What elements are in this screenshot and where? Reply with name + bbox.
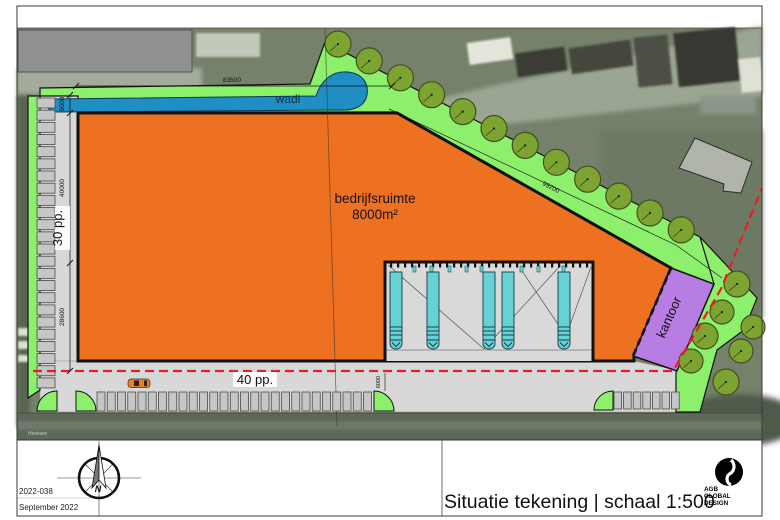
- dock-court: [385, 262, 593, 361]
- street-label: Hoekwei: [28, 431, 47, 437]
- dim-west-middle: 40000: [59, 179, 66, 197]
- dock-truck: [502, 272, 514, 349]
- truck-cab: [483, 340, 495, 349]
- tree: [450, 99, 476, 125]
- parking-stall: [302, 392, 310, 411]
- parking-stall: [118, 392, 126, 411]
- dock-door-tick: [523, 263, 525, 268]
- tree: [713, 369, 739, 395]
- logo-line1: AGB: [704, 486, 718, 493]
- truck-trailer: [502, 272, 514, 327]
- parking-stall: [37, 268, 55, 278]
- dock-door-tick: [544, 263, 546, 268]
- parking-stall: [37, 159, 55, 169]
- tree: [481, 116, 507, 142]
- dock-door-tick: [439, 263, 441, 268]
- dock-bumper: [413, 266, 416, 272]
- tree: [325, 31, 351, 57]
- parking-stall: [37, 98, 55, 108]
- parking-stall: [37, 305, 55, 315]
- parking-stall: [200, 392, 208, 411]
- parking-stall: [169, 392, 177, 411]
- dock-door-tick: [530, 263, 532, 268]
- tree: [741, 315, 765, 339]
- dock-bumper: [520, 266, 523, 272]
- parking-stall: [179, 392, 187, 411]
- tree: [637, 200, 663, 226]
- parking-stall: [37, 256, 55, 266]
- parking-stall: [37, 122, 55, 132]
- parking-stall: [37, 354, 55, 364]
- site-plan-svg: 83500 5000 40000 28600 99200 6000 wadi b…: [0, 0, 780, 520]
- tree: [356, 48, 382, 74]
- truck-cab: [390, 340, 402, 349]
- dock-door-tick: [516, 263, 518, 268]
- dock-bumper: [448, 266, 451, 272]
- parking-stall: [241, 392, 249, 411]
- parking-stall: [251, 392, 259, 411]
- dock-door-tick: [460, 263, 462, 268]
- parking-stall: [282, 392, 290, 411]
- dock-door-tick: [453, 263, 455, 268]
- parking-stall: [37, 281, 55, 291]
- logo-line2: GLOBAL: [704, 493, 731, 500]
- parking-stall: [37, 341, 55, 351]
- parking-stall: [37, 317, 55, 327]
- parking-stall: [37, 195, 55, 205]
- parking-stall: [148, 392, 156, 411]
- dock-door-tick: [474, 263, 476, 268]
- parking-left-label: 30 pp.: [50, 210, 65, 246]
- parking-stall: [643, 392, 651, 409]
- situation-drawing-page: 83500 5000 40000 28600 99200 6000 wadi b…: [0, 0, 780, 520]
- tree: [668, 217, 694, 243]
- parking-stall: [210, 392, 218, 411]
- dock-bumper: [562, 266, 565, 272]
- parking-stall: [189, 392, 197, 411]
- tree: [692, 323, 718, 349]
- truck-cab: [427, 340, 439, 349]
- parking-stall: [97, 392, 105, 411]
- dock-door-tick: [565, 263, 567, 268]
- truck-trailer: [390, 272, 402, 327]
- dock-door-tick: [404, 263, 406, 268]
- existing-building-northwest: [18, 30, 192, 72]
- parking-stall: [614, 392, 622, 409]
- truck-cab: [502, 340, 514, 349]
- wadi-label: wadi: [275, 92, 301, 106]
- parking-stall: [220, 392, 228, 411]
- parking-stall: [37, 329, 55, 339]
- dock-door-tick: [495, 263, 497, 268]
- parking-stall: [128, 392, 136, 411]
- parking-stall: [652, 392, 660, 409]
- dock-door-tick: [551, 263, 553, 268]
- parking-stall: [323, 392, 331, 411]
- parking-stall: [271, 392, 279, 411]
- tree: [543, 149, 569, 175]
- car-icon: [128, 379, 150, 388]
- logo-line3: DESIGN: [704, 500, 729, 507]
- truck-trailer: [483, 272, 495, 327]
- drawing-title: Situatie tekening | schaal 1:500: [444, 491, 715, 513]
- tree: [606, 183, 632, 209]
- parking-stall: [633, 392, 641, 409]
- dock-door-tick: [586, 263, 588, 268]
- tree: [729, 339, 753, 363]
- dock-door-tick: [425, 263, 427, 268]
- dim-west-lower: 28600: [59, 308, 66, 326]
- truck-cab: [558, 340, 570, 349]
- dock-door-tick: [558, 263, 560, 268]
- parking-stall: [261, 392, 269, 411]
- parking-stall: [138, 392, 146, 411]
- parking-stall: [37, 183, 55, 193]
- dock-truck: [390, 272, 402, 349]
- parking-stall: [37, 171, 55, 181]
- parking-stall: [37, 147, 55, 157]
- dock-door-tick: [418, 263, 420, 268]
- dock-door-tick: [509, 263, 511, 268]
- dim-north: 83500: [223, 77, 241, 84]
- parking-stall: [292, 392, 300, 411]
- parking-stall: [343, 392, 351, 411]
- parking-stall: [672, 392, 680, 409]
- parking-stall: [107, 392, 115, 411]
- dock-door-tick: [579, 263, 581, 268]
- truck-trailer: [558, 272, 570, 327]
- title-block: 2022-038 September 2022 Situatie tekenin…: [17, 440, 762, 516]
- dock-bumper: [480, 266, 483, 272]
- parking-stall: [37, 135, 55, 145]
- parking-stall: [662, 392, 670, 409]
- parking-stall: [364, 392, 372, 411]
- tree: [512, 132, 538, 158]
- parking-bottom-label: 40 pp.: [237, 372, 273, 387]
- dock-bumper: [465, 266, 468, 272]
- truck-trailer: [427, 272, 439, 327]
- parking-stall: [159, 392, 167, 411]
- dock-door-tick: [397, 263, 399, 268]
- dim-dock: 6000: [376, 376, 382, 388]
- parking-stall: [312, 392, 320, 411]
- dock-truck: [558, 272, 570, 349]
- building-label-1: bedrijfsruimte: [334, 191, 415, 206]
- parking-stall: [230, 392, 238, 411]
- dock-truck: [427, 272, 439, 349]
- tree: [575, 166, 601, 192]
- parking-stall: [37, 378, 55, 388]
- project-number: 2022-038: [19, 487, 53, 496]
- parking-stall: [37, 110, 55, 120]
- parking-stall: [353, 392, 361, 411]
- parking-stall: [333, 392, 341, 411]
- bottom-parking-stalls-row1: [97, 392, 372, 411]
- compass-n: N: [95, 484, 102, 494]
- dock-door-tick: [502, 263, 504, 268]
- parking-stall: [37, 293, 55, 303]
- project-date: September 2022: [19, 503, 79, 512]
- tree: [419, 82, 445, 108]
- building-label-2: 8000m²: [352, 207, 398, 222]
- dim-west-upper: 5000: [59, 96, 66, 111]
- dock-bumper: [537, 266, 540, 272]
- bottom-parking-stalls-row2: [614, 392, 679, 409]
- dock-bumper: [430, 266, 433, 272]
- dock-door-tick: [572, 263, 574, 268]
- parking-stall: [624, 392, 632, 409]
- dock-door-tick: [488, 263, 490, 268]
- dock-truck: [483, 272, 495, 349]
- dock-door-tick: [390, 263, 392, 268]
